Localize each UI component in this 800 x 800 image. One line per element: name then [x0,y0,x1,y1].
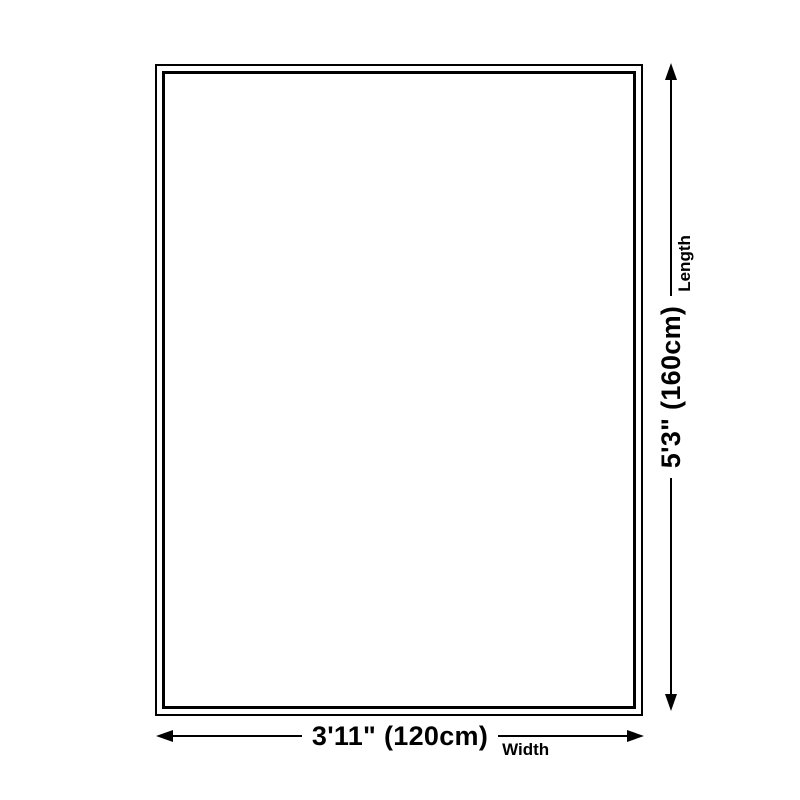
length-arrow-segment-top: Length [651,63,691,296]
width-label: Width [502,741,549,758]
width-arrow-segment-right: Width [498,716,644,756]
width-dimension-arrow: 3'11" (120cm) Width [156,716,644,756]
rug-outline-outer [155,64,643,716]
dimension-line [670,478,672,694]
arrow-down-icon [665,694,677,711]
width-value: 3'11" (120cm) [312,723,488,750]
length-arrow-segment-bottom [651,478,691,711]
length-dimension-arrow: 5'3" (160cm) Length [651,63,691,711]
length-label: Length [676,235,693,292]
rug-outline-inner [162,71,636,709]
dimension-line [173,735,302,737]
size-diagram: 5'3" (160cm) Length 3'11" (120cm) Width [0,0,800,800]
dimension-line [498,735,627,737]
length-value: 5'3" (160cm) [658,306,685,468]
dimension-line [670,80,672,296]
arrow-left-icon [156,730,173,742]
width-arrow-segment-left [156,716,302,756]
arrow-up-icon [665,63,677,80]
arrow-right-icon [627,730,644,742]
